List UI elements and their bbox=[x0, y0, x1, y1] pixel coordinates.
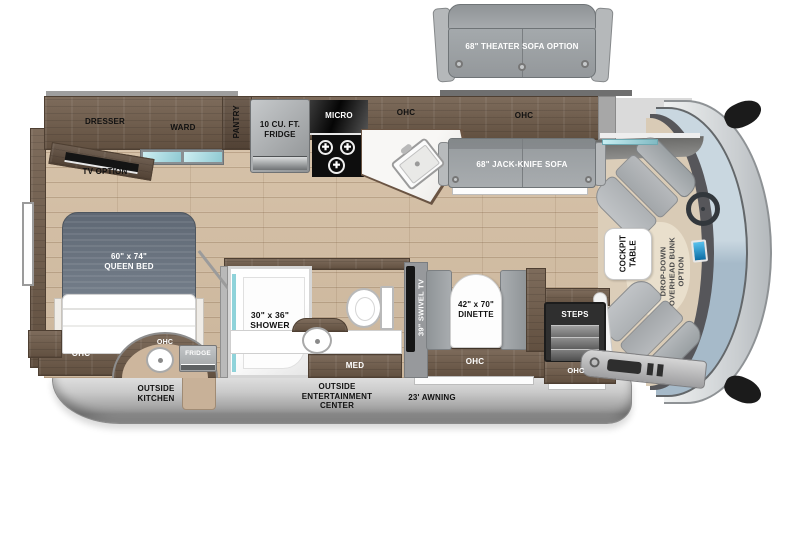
fridge-10cuft-label: 10 CU. FT. FRIDGE bbox=[250, 120, 310, 139]
ohc-dinette-label: OHC bbox=[440, 357, 510, 367]
ward-label: WARD bbox=[148, 123, 218, 133]
burner-icon: ✚ bbox=[340, 140, 355, 155]
ohc-kitchen-label: OHC bbox=[376, 108, 436, 118]
sofa-foot-icon bbox=[585, 176, 592, 183]
rear-window bbox=[22, 202, 34, 286]
toilet-tank bbox=[380, 286, 394, 330]
sofa-foot-icon bbox=[455, 60, 463, 68]
theater-sofa-backrest bbox=[448, 4, 596, 30]
outside-fridge-label: FRIDGE bbox=[179, 350, 217, 358]
side-mirror-icon bbox=[721, 371, 765, 408]
ohc-sofa-label: OHC bbox=[494, 111, 554, 121]
dinette-end-wall bbox=[526, 268, 546, 352]
dresser-label: DRESSER bbox=[60, 117, 150, 127]
cockpit-table-label: COCKPIT TABLE bbox=[618, 232, 637, 276]
swivel-tv-icon bbox=[406, 266, 415, 352]
burner-icon: ✚ bbox=[328, 157, 345, 174]
lav-sink bbox=[302, 327, 332, 354]
ohc-bed-label: OHC bbox=[46, 349, 116, 359]
tv-option-label: TV OPTION bbox=[68, 167, 142, 177]
jack-knife-sofa-label: 68" JACK-KNIFE SOFA bbox=[448, 160, 596, 170]
steering-wheel-icon bbox=[686, 192, 720, 226]
swivel-tv-label: 39" SWIVEL TV bbox=[417, 266, 426, 350]
window-strip bbox=[452, 187, 588, 195]
queen-bed-label: 60" x 74" QUEEN BED bbox=[62, 252, 196, 271]
theater-sofa-label: 68" THEATER SOFA OPTION bbox=[448, 42, 596, 52]
sofa-foot-icon bbox=[581, 60, 589, 68]
outside-entertainment-label: OUTSIDE ENTERTAINMENT CENTER bbox=[282, 382, 392, 411]
cooktop: ✚ ✚ ✚ bbox=[312, 133, 364, 177]
awning-label: 23' AWNING bbox=[392, 393, 472, 403]
ohc-outside-kitchen-label: OHC bbox=[140, 339, 190, 347]
sofa-foot-icon bbox=[452, 176, 459, 183]
outside-kitchen-sink bbox=[146, 347, 174, 373]
dash-screen-icon bbox=[691, 239, 708, 262]
window-strip bbox=[414, 376, 534, 385]
radio-icon bbox=[607, 359, 642, 374]
ohc-steps-label: OHC bbox=[546, 366, 606, 375]
pantry-label: PANTRY bbox=[232, 98, 242, 146]
defrost-vent-icon bbox=[602, 139, 658, 145]
rv-floorplan: 68" THEATER SOFA OPTION DRESSER WARD TV … bbox=[0, 0, 800, 545]
micro-label: MICRO bbox=[310, 111, 368, 121]
steps-label: STEPS bbox=[544, 310, 606, 320]
burner-icon: ✚ bbox=[318, 140, 333, 155]
bunk-option-label: DROP-DOWN OVERHEAD BUNK OPTION bbox=[659, 217, 686, 327]
shower-label: 30" x 36" SHOWER bbox=[228, 310, 312, 330]
toilet-bowl bbox=[346, 288, 382, 328]
dinette-label: 42" x 70" DINETTE bbox=[448, 300, 504, 319]
dinette-bench-right bbox=[500, 270, 528, 350]
med-label: MED bbox=[308, 361, 402, 371]
outside-kitchen-label: OUTSIDE KITCHEN bbox=[118, 384, 194, 403]
sofa-foot-icon bbox=[518, 63, 526, 71]
